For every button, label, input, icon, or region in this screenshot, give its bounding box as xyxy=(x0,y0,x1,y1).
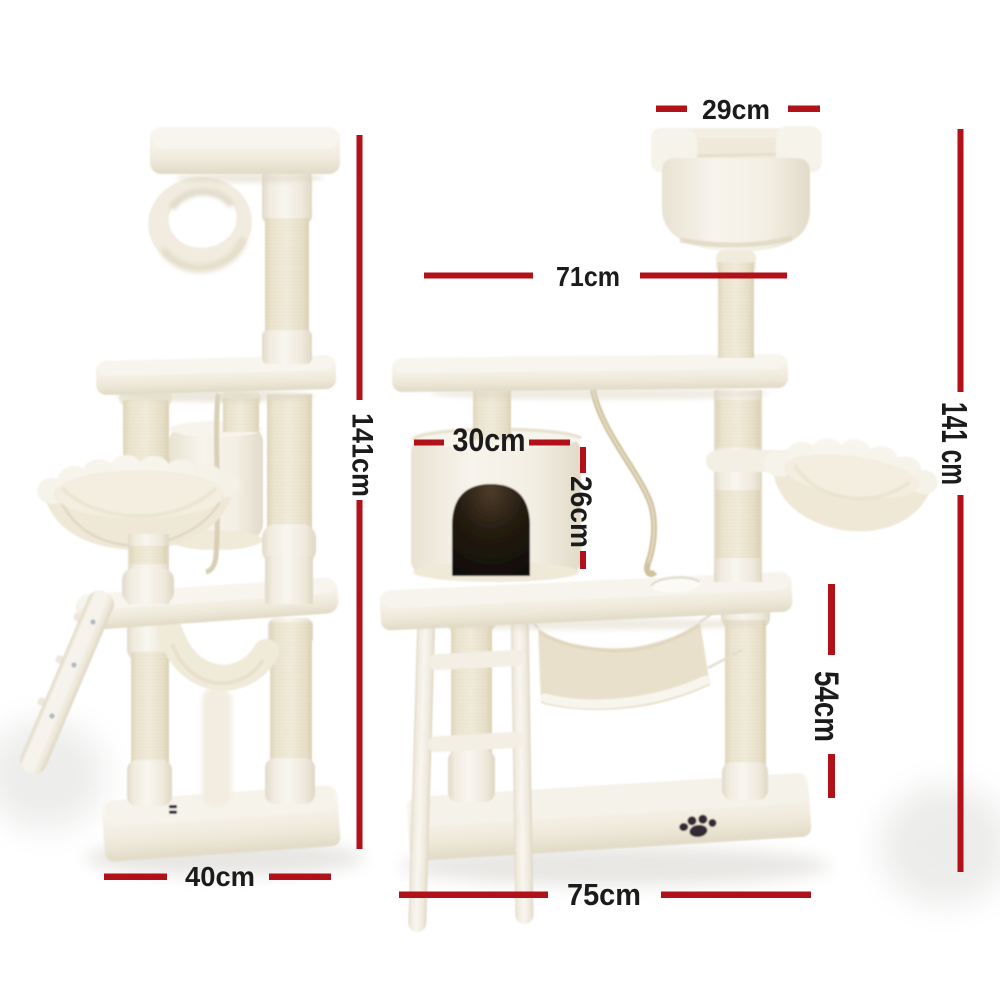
svg-text:26cm: 26cm xyxy=(564,476,597,548)
svg-text:141 cm: 141 cm xyxy=(934,402,975,485)
svg-text:54cm: 54cm xyxy=(807,671,845,742)
svg-text:141cm: 141cm xyxy=(346,413,379,497)
svg-text:40cm: 40cm xyxy=(185,861,255,892)
svg-text:75cm: 75cm xyxy=(567,877,641,912)
svg-text:71cm: 71cm xyxy=(556,261,620,292)
svg-text:30cm: 30cm xyxy=(453,422,526,458)
svg-text:29cm: 29cm xyxy=(702,94,770,125)
